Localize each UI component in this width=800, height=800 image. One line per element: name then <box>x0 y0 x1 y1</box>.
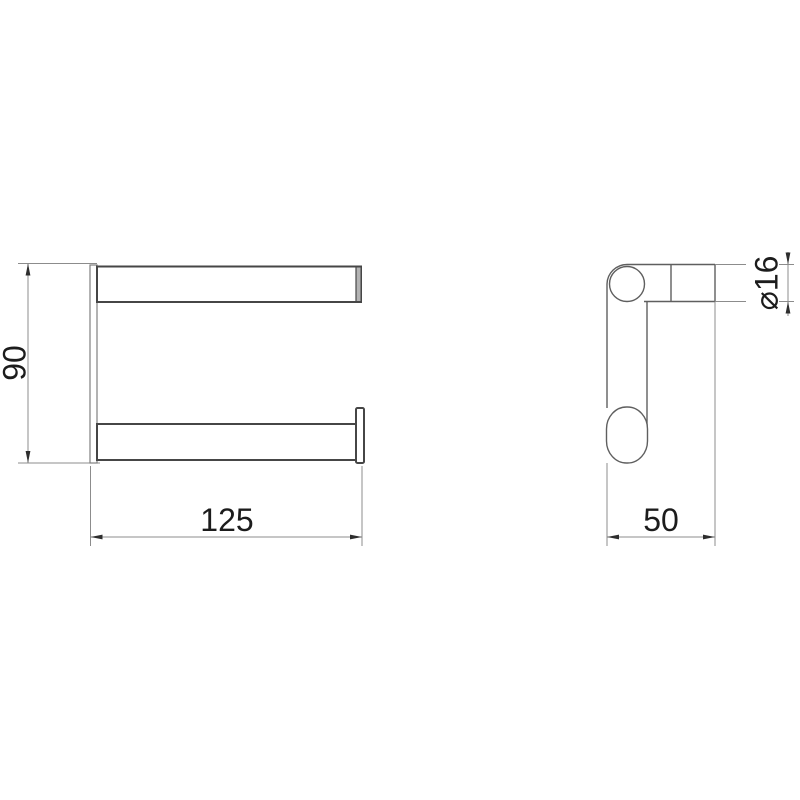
side-lip-stadium <box>607 407 648 463</box>
width-arrow-right <box>350 535 362 540</box>
height-dimension: 90 <box>0 264 100 464</box>
height-arrow-bottom <box>26 451 31 463</box>
depth-arrow-right <box>703 535 715 540</box>
side-view: ⌀16 50 <box>607 252 795 546</box>
front-roll-stop-lip <box>356 408 364 463</box>
diameter-arrow-top <box>786 253 791 265</box>
diameter-dim-label: ⌀16 <box>749 256 785 311</box>
side-rod-circle <box>610 267 645 302</box>
front-top-bar <box>97 267 361 303</box>
front-wall-plate <box>90 265 97 463</box>
drawing-svg: 90 125 <box>0 0 800 800</box>
width-dimension: 125 <box>91 466 363 546</box>
technical-drawing: 90 125 <box>0 0 800 800</box>
front-bottom-bar <box>97 424 356 460</box>
diameter-dimension: ⌀16 <box>715 252 794 316</box>
diameter-arrow-bottom <box>786 302 791 314</box>
width-dim-label: 125 <box>200 502 253 538</box>
front-view: 90 125 <box>0 264 364 547</box>
height-dim-label: 90 <box>0 345 33 381</box>
depth-dim-label: 50 <box>643 502 679 538</box>
width-arrow-left <box>91 535 103 540</box>
front-top-bar-endcap <box>357 268 361 302</box>
depth-dimension: 50 <box>607 463 715 546</box>
height-arrow-top <box>26 264 31 276</box>
depth-arrow-left <box>607 535 619 540</box>
